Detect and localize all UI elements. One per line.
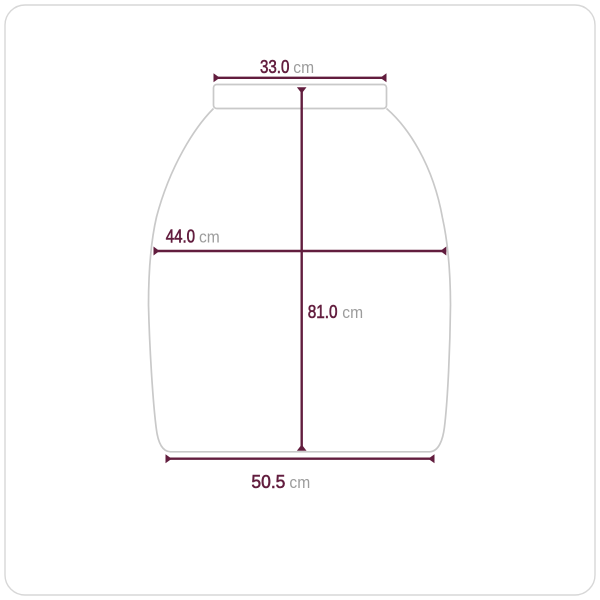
svg-text:cm: cm [342,303,363,322]
svg-text:44.0: 44.0 [166,226,195,247]
svg-text:33.0: 33.0 [260,56,289,77]
svg-text:81.0: 81.0 [308,301,338,322]
svg-text:50.5: 50.5 [251,471,285,492]
svg-text:cm: cm [289,473,310,492]
svg-text:cm: cm [293,58,314,77]
svg-text:cm: cm [199,228,220,247]
